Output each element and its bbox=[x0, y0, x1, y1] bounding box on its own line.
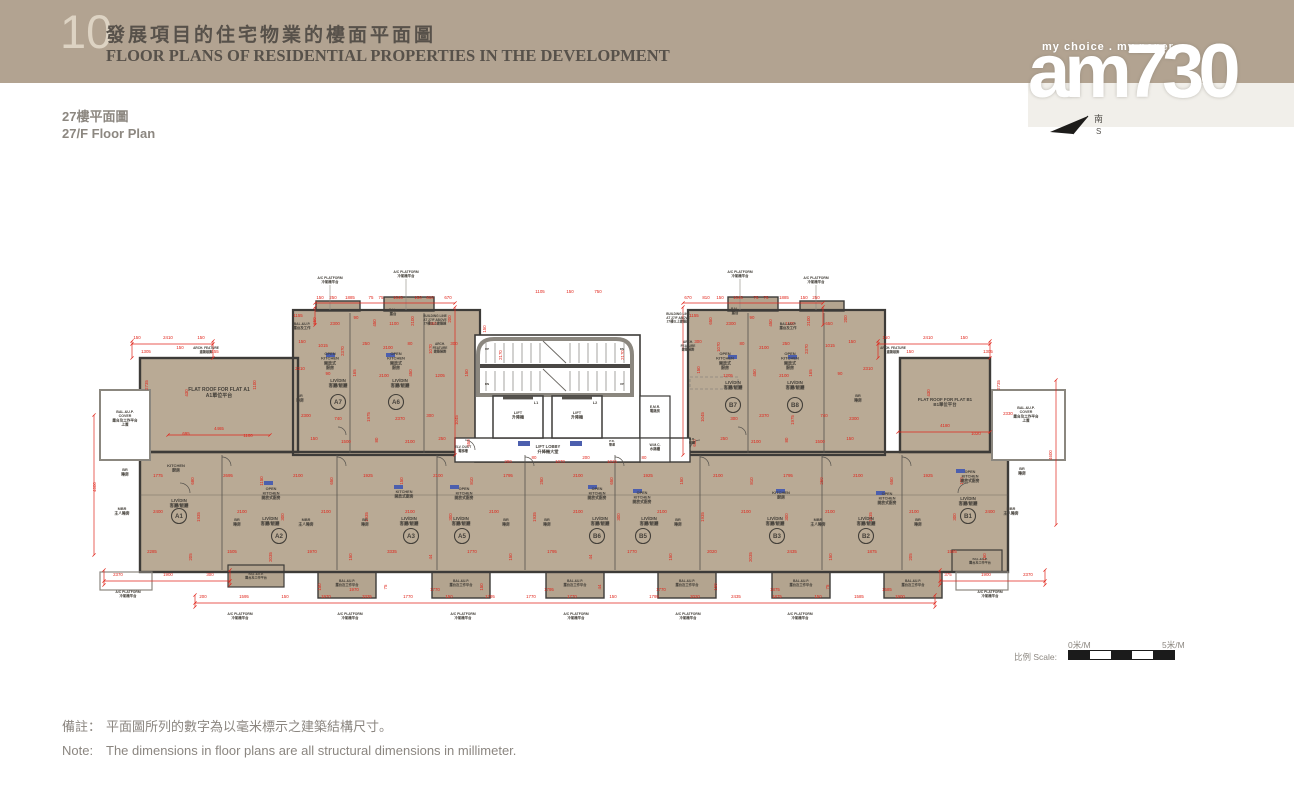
dimension-text: 2100 bbox=[237, 509, 247, 514]
unit-label: B6 bbox=[593, 533, 601, 540]
dimension-text: 450 bbox=[408, 369, 413, 377]
dimension-text: 2370 bbox=[1023, 572, 1033, 577]
dimension-text: 1015 bbox=[318, 343, 328, 348]
dimension-text: 165 bbox=[352, 369, 357, 377]
dimension-text: 44 bbox=[588, 554, 593, 559]
floor-label-en: 27/F Floor Plan bbox=[62, 125, 155, 142]
dimension-text: 810 bbox=[469, 477, 474, 485]
dimension-text: 1500 bbox=[341, 439, 351, 444]
dimension-text: 2100 bbox=[405, 439, 415, 444]
dimension-text: 2370 bbox=[759, 413, 769, 418]
dimension-text: 80 bbox=[740, 341, 745, 346]
dimension-text: 150 bbox=[696, 366, 701, 374]
dimension-text: 650 bbox=[609, 477, 614, 485]
compass-label-cn: 南 bbox=[1094, 113, 1103, 124]
dimension-text: 80 bbox=[642, 455, 647, 460]
room-label: UP bbox=[485, 347, 489, 351]
dimension-text: 1770 bbox=[467, 549, 477, 554]
dimension-text: 2400 bbox=[153, 509, 163, 514]
dimension-text: 810 bbox=[749, 477, 754, 485]
dimension-text: 3335 bbox=[362, 594, 372, 599]
dimension-text: 1305 bbox=[141, 349, 151, 354]
room-label: KITCHEN開放式廚房 bbox=[395, 490, 414, 498]
room-label: BUILDING LINEAT 27/F ABOVE27樓以上建築線 bbox=[666, 312, 690, 324]
unit-label: A6 bbox=[392, 399, 400, 406]
floor-plan-label: 27樓平面圖 27/F Floor Plan bbox=[62, 108, 155, 142]
dimension-text: 250 bbox=[782, 341, 790, 346]
dimension-text: 1505 bbox=[227, 549, 237, 554]
dimension-text: 1795 bbox=[547, 549, 557, 554]
dimension-text: 1875 bbox=[867, 549, 877, 554]
dimension-text: 1015 bbox=[825, 343, 835, 348]
dimension-text: 250 bbox=[438, 436, 446, 441]
dimension-text: 300 bbox=[426, 413, 434, 418]
dimension-text: 80 bbox=[408, 341, 413, 346]
dimension-text: 1970 bbox=[307, 549, 317, 554]
floor-plan: 1502501885757516451508106706708101501645… bbox=[88, 265, 1088, 645]
dimension-text: 450 bbox=[768, 319, 773, 327]
dimension-text: 1105 bbox=[535, 289, 545, 294]
dimension-text: 1775 bbox=[153, 473, 163, 478]
unit-label: B5 bbox=[639, 533, 647, 540]
room-label: LIV/DIN客廳/飯廳 bbox=[958, 496, 978, 507]
dimension-text: 1970 bbox=[349, 587, 359, 592]
note-label-cn: 備註： bbox=[62, 716, 106, 735]
room-label: L2 bbox=[593, 401, 597, 405]
room-label: LIV/DIN客廳/飯廳 bbox=[390, 378, 410, 389]
dimension-text: 90 bbox=[326, 371, 331, 376]
dimension-text: 1770 bbox=[430, 587, 440, 592]
room-label: H.R.喉轆 bbox=[689, 437, 695, 445]
dimension-text: 1205 bbox=[435, 373, 445, 378]
room-label: A/C PLATFORM冷氣機平台 bbox=[977, 590, 1003, 598]
compass-label-s: S bbox=[1096, 127, 1101, 136]
dimension-text: 1100 bbox=[389, 321, 399, 326]
dimension-text: 75 bbox=[379, 295, 384, 300]
dimension-text: 250 bbox=[539, 477, 544, 485]
dimension-text: 650 bbox=[889, 477, 894, 485]
dimension-text: 650 bbox=[708, 317, 713, 325]
dimension-text: 150 bbox=[316, 295, 324, 300]
scale-bar-segments bbox=[1068, 650, 1175, 660]
room-label: MBR主人睡房 bbox=[114, 507, 129, 515]
room-label: LIFT升降機 bbox=[512, 410, 524, 420]
dimension-text: 150 bbox=[348, 553, 353, 561]
dimension-text: 2100 bbox=[853, 473, 863, 478]
dimension-text: 1500 bbox=[815, 439, 825, 444]
dimension-text: 1645 bbox=[733, 295, 743, 300]
dimension-text: 150 bbox=[566, 289, 574, 294]
dimension-text: 2100 bbox=[909, 509, 919, 514]
room-label: A/C PLATFORM冷氣機平台 bbox=[787, 612, 813, 620]
room-label: BAL.&U.P.露台及工作 bbox=[780, 322, 798, 330]
dimension-text: 150 bbox=[310, 436, 318, 441]
room-label: UP bbox=[620, 382, 624, 386]
stair-landing bbox=[480, 364, 630, 368]
dimension-text: 250 bbox=[362, 341, 370, 346]
dimension-text: 2100 bbox=[751, 439, 761, 444]
dimension-text: 250 bbox=[812, 295, 820, 300]
room-label: LIV/DIN客廳/飯廳 bbox=[785, 380, 805, 391]
dimension-text: 150 bbox=[668, 553, 673, 561]
dimension-text: 200 bbox=[199, 594, 207, 599]
dimension-text: 2410 bbox=[923, 335, 933, 340]
dimension-text: 450 bbox=[752, 369, 757, 377]
dimension-text: 1770 bbox=[567, 594, 577, 599]
room-label: A/C PLATFORM冷氣機平台 bbox=[115, 590, 141, 598]
dimension-text: 1155 bbox=[293, 313, 303, 318]
dimension-text: 200 bbox=[504, 459, 512, 464]
dimension-text: 2035 bbox=[748, 552, 753, 562]
dimension-text: 1900 bbox=[981, 572, 991, 577]
dimension-text: 75 bbox=[825, 584, 830, 589]
room-label: DN bbox=[485, 382, 489, 386]
dimension-text: 1975 bbox=[790, 415, 795, 425]
dimension-text: 2735 bbox=[996, 380, 1001, 390]
dimension-text: 2300 bbox=[849, 416, 859, 421]
dimension-text: 650 bbox=[329, 477, 334, 485]
dimension-text: 150 bbox=[414, 295, 422, 300]
dimension-text: 150 bbox=[713, 583, 718, 591]
floor-label-cn: 27樓平面圖 bbox=[62, 108, 155, 125]
dimension-text: 3335 bbox=[387, 549, 397, 554]
dimension-text: 2020 bbox=[690, 594, 700, 599]
dimension-text: 150 bbox=[445, 594, 453, 599]
dimension-text: 150 bbox=[133, 335, 141, 340]
dimension-text: 1935 bbox=[700, 512, 705, 522]
dimension-text: 75 bbox=[369, 295, 374, 300]
room-label: A/C PLATFORM冷氣機平台 bbox=[227, 612, 253, 620]
unit-label: B3 bbox=[773, 533, 781, 540]
dimension-text: 1875 bbox=[772, 594, 782, 599]
room-label: LIV/DIN客廳/飯廳 bbox=[260, 516, 280, 527]
dimension-text: 150 bbox=[281, 594, 289, 599]
dimension-text: 150 bbox=[508, 553, 513, 561]
dimension-text: 300 bbox=[730, 416, 738, 421]
room-label: A/C PLATFORM冷氣機平台 bbox=[337, 612, 363, 620]
dimension-text: 2285 bbox=[147, 549, 157, 554]
dimension-text: 1770 bbox=[656, 587, 666, 592]
dimension-text: 2300 bbox=[330, 321, 340, 326]
room-label: LIV/DIN客廳/飯廳 bbox=[451, 516, 471, 527]
dim-chain-vertical bbox=[681, 305, 684, 456]
dimension-text: 1155 bbox=[689, 313, 699, 318]
dimension-text: 2300 bbox=[301, 413, 311, 418]
dimension-text: 300 bbox=[450, 341, 458, 346]
dimension-text: 1770 bbox=[403, 594, 413, 599]
unit-label: A1 bbox=[175, 513, 183, 520]
room-label: LIV/DIN客廳/飯廳 bbox=[765, 516, 785, 527]
room-label: A/C PLATFORM冷氣機平台 bbox=[393, 270, 419, 278]
unit-label: B1 bbox=[964, 513, 972, 520]
room-label: W.M.C.水錶櫃 bbox=[649, 443, 661, 451]
room-label: A/C PLATFORM冷氣機平台 bbox=[675, 612, 701, 620]
room-label: LIV/DIN客廳/飯廳 bbox=[723, 380, 743, 391]
room-label: A/C PLATFORM冷氣機平台 bbox=[317, 276, 343, 284]
dimension-text: 2100 bbox=[741, 509, 751, 514]
dimension-text: 1770 bbox=[526, 594, 536, 599]
room-label: DN bbox=[620, 347, 624, 351]
dimension-text: 2370 bbox=[804, 344, 809, 354]
dimension-text: 150 bbox=[906, 349, 914, 354]
dim-chain-vertical bbox=[102, 568, 105, 586]
dimension-text: 650 bbox=[825, 321, 833, 326]
dimension-text: 300 bbox=[616, 513, 621, 521]
dimension-text: 1045 bbox=[454, 415, 459, 425]
room-label: LIV/DIN客廳/飯廳 bbox=[399, 516, 419, 527]
dimension-text: 1875 bbox=[770, 587, 780, 592]
dimension-text: 2695 bbox=[223, 473, 233, 478]
room-label: BAL.露台 bbox=[389, 308, 397, 316]
dimension-text: 150 bbox=[464, 369, 469, 377]
dimension-text: 2100 bbox=[779, 373, 789, 378]
dimension-text: 150 bbox=[176, 345, 184, 350]
room-label: BAL.露台 bbox=[731, 307, 739, 315]
room-label: E.M.R.電錶房 bbox=[650, 405, 661, 413]
dimension-text: 1795 bbox=[485, 594, 495, 599]
dimension-text: 1925 bbox=[363, 473, 373, 478]
dimension-text: 150 bbox=[298, 339, 306, 344]
compass: 南 S bbox=[1048, 108, 1118, 144]
dimension-text: 1595 bbox=[239, 594, 249, 599]
dimension-text: 90 bbox=[354, 315, 359, 320]
emr-room bbox=[640, 396, 670, 438]
scale-label: 比例 Scale: bbox=[1014, 651, 1057, 663]
unit-label: A2 bbox=[275, 533, 283, 540]
room-label: BR睡房 bbox=[121, 468, 129, 476]
dimension-text: 2100 bbox=[293, 473, 303, 478]
dimension-text: 430 bbox=[926, 389, 931, 397]
dimension-text: 2100 bbox=[806, 316, 811, 326]
dimension-text: 75 bbox=[383, 584, 388, 589]
dimension-text: 2310 bbox=[295, 366, 305, 371]
dimension-text: 2310 bbox=[863, 366, 873, 371]
dimension-text: 2020 bbox=[707, 549, 717, 554]
dimension-text: 200 bbox=[447, 315, 452, 323]
dimension-text: 1045 bbox=[700, 412, 705, 422]
dimension-text: 1885 bbox=[779, 295, 789, 300]
dimension-text: 150 bbox=[960, 335, 968, 340]
dimension-text: 300 bbox=[952, 513, 957, 521]
dimension-text: 44 bbox=[597, 584, 602, 589]
dimension-text: 150 bbox=[846, 436, 854, 441]
dimension-text: 450 bbox=[372, 319, 377, 327]
dimension-text: 2100 bbox=[410, 316, 415, 326]
north-arrow-icon bbox=[1050, 116, 1088, 134]
dimension-text: 250 bbox=[329, 295, 337, 300]
room-label: LIV/DIN客廳/飯廳 bbox=[856, 516, 876, 527]
dimension-text: 1205 bbox=[723, 373, 733, 378]
dimension-text: 810 bbox=[426, 295, 434, 300]
dimension-text: 1935 bbox=[532, 512, 537, 522]
note-text-en: The dimensions in floor plans are all st… bbox=[106, 743, 516, 758]
room-label: LIV/DIN客廳/飯廳 bbox=[639, 516, 659, 527]
dimension-text: 1020 bbox=[971, 431, 981, 436]
dimension-text: 2035 bbox=[268, 552, 273, 562]
unit-label: A7 bbox=[334, 399, 342, 406]
dimension-text: 2100 bbox=[489, 509, 499, 514]
dimension-text: 2100 bbox=[405, 509, 415, 514]
room-label: LIV/DIN客廳/飯廳 bbox=[590, 516, 610, 527]
dimension-text: 75 bbox=[754, 295, 759, 300]
dimension-text: 300 bbox=[784, 513, 789, 521]
dimension-text: 680 bbox=[190, 477, 195, 485]
dimension-text: 2300 bbox=[726, 321, 736, 326]
dimension-text: 150 bbox=[679, 477, 684, 485]
dimension-text: 1795 bbox=[503, 473, 513, 478]
dimension-text: 4180 bbox=[940, 423, 950, 428]
dimension-text: 740 bbox=[334, 416, 342, 421]
unit-label: A3 bbox=[407, 533, 415, 540]
dimension-text: 4600 bbox=[92, 482, 97, 492]
room-label: P.D.管道 bbox=[609, 439, 615, 447]
room-label: A/C PLATFORM冷氣機平台 bbox=[727, 270, 753, 278]
scale-bar: 比例 Scale: 0米/M 5米/M bbox=[1014, 638, 1194, 664]
dimension-text: 695 bbox=[182, 431, 190, 436]
dimension-text: 1885 bbox=[345, 295, 355, 300]
dimension-text: 4600 bbox=[1048, 450, 1053, 460]
dimension-text: 2100 bbox=[321, 509, 331, 514]
dimension-text: 2100 bbox=[573, 473, 583, 478]
dim-chain bbox=[193, 601, 936, 604]
room-label: BR睡房 bbox=[1018, 467, 1026, 475]
dimension-text: 1900 bbox=[895, 594, 905, 599]
dimension-text: 200 bbox=[843, 315, 848, 323]
note-label-en: Note: bbox=[62, 743, 106, 758]
room-label: L1 bbox=[534, 401, 538, 405]
dimension-text: 2170 bbox=[620, 350, 625, 360]
room-label: BAL.&U.P.露台及工作 bbox=[294, 322, 312, 330]
dimension-text: 1770 bbox=[627, 549, 637, 554]
dimension-text: 75 bbox=[764, 295, 769, 300]
dimension-text: 2330 bbox=[1003, 411, 1013, 416]
dimension-text: 4465 bbox=[214, 426, 224, 431]
dimension-text: 2100 bbox=[657, 509, 667, 514]
unit-label: B7 bbox=[729, 402, 737, 409]
section-number: 10 bbox=[60, 4, 112, 59]
dimension-text: 2100 bbox=[759, 345, 769, 350]
room-label: MBR主人睡房 bbox=[1003, 507, 1018, 515]
dimension-text: 150 bbox=[882, 335, 890, 340]
dimension-text: 1795 bbox=[783, 473, 793, 478]
dimension-text: 1900 bbox=[163, 572, 173, 577]
dimension-text: 150 bbox=[482, 325, 487, 333]
dimension-text: 250 bbox=[819, 477, 824, 485]
dimension-text: 1925 bbox=[643, 473, 653, 478]
dimension-text: 1585 bbox=[854, 594, 864, 599]
dimension-text: 250 bbox=[720, 436, 728, 441]
room-label: BUILDING LINEAT 27/F ABOVE27樓以上建築線 bbox=[423, 314, 447, 326]
dimension-text: 1925 bbox=[923, 473, 933, 478]
notes: 備註： 平面圖所列的數字為以毫米標示之建築結構尺寸。 Note: The dim… bbox=[62, 716, 516, 766]
dimension-text: 2370 bbox=[340, 346, 345, 356]
note-text-cn: 平面圖所列的數字為以毫米標示之建築結構尺寸。 bbox=[106, 716, 392, 735]
dimension-text: 150 bbox=[716, 295, 724, 300]
dim-chain bbox=[938, 579, 1046, 582]
dimension-text: 80 bbox=[784, 437, 789, 442]
dimension-text: 1100 bbox=[252, 380, 257, 390]
page-title-english: FLOOR PLANS OF RESIDENTIAL PROPERTIES IN… bbox=[106, 46, 670, 66]
dimension-text: 2435 bbox=[787, 549, 797, 554]
dimension-text: 2100 bbox=[433, 473, 443, 478]
dimension-text: 740 bbox=[820, 413, 828, 418]
dimension-text: 1585 bbox=[882, 587, 892, 592]
dimension-text: 2370 bbox=[395, 416, 405, 421]
dimension-text: 1795 bbox=[649, 594, 659, 599]
dimension-text: 2100 bbox=[825, 509, 835, 514]
dimension-text: 2170 bbox=[498, 350, 503, 360]
dimension-text: 650 bbox=[312, 317, 317, 325]
dimension-text: 300 bbox=[694, 339, 702, 344]
dimension-text: 2100 bbox=[713, 473, 723, 478]
dimension-text: 90 bbox=[838, 371, 843, 376]
dimension-text: 150 bbox=[399, 477, 404, 485]
dimension-text: 150 bbox=[197, 335, 205, 340]
dimension-text: 205 bbox=[188, 553, 193, 561]
dimension-text: 1015 bbox=[607, 459, 617, 464]
unit-label: A5 bbox=[458, 533, 466, 540]
room-label: LIV/DIN客廳/飯廳 bbox=[169, 498, 189, 509]
unit-label: B2 bbox=[862, 533, 870, 540]
dim-chain-vertical bbox=[193, 593, 196, 608]
room-label: A/C PLATFORM冷氣機平台 bbox=[563, 612, 589, 620]
dimension-text: 810 bbox=[702, 295, 710, 300]
unit-label: B8 bbox=[791, 402, 799, 409]
dimension-text: 300 bbox=[280, 513, 285, 521]
dimension-text: 205 bbox=[908, 553, 913, 561]
page-title-chinese: 發展項目的住宅物業的樓面平面圖 bbox=[106, 20, 436, 47]
dimension-text: 1100 bbox=[243, 433, 253, 438]
dimension-text: 80 bbox=[532, 455, 537, 460]
room-label: A/C PLATFORM冷氣機平台 bbox=[450, 612, 476, 620]
dimension-text: 44 bbox=[428, 554, 433, 559]
dimension-text: 165 bbox=[808, 369, 813, 377]
dimension-text: 150 bbox=[479, 583, 484, 591]
dimension-text: 2100 bbox=[383, 345, 393, 350]
dimension-text: 1070 bbox=[555, 459, 565, 464]
dim-chain bbox=[102, 579, 231, 582]
dimension-text: 2370 bbox=[113, 572, 123, 577]
dimension-text: 150 bbox=[800, 295, 808, 300]
room-label: LIFT LOBBY升降機大堂 bbox=[536, 444, 561, 455]
dimension-text: 150 bbox=[828, 553, 833, 561]
dimension-text: 1305 bbox=[983, 349, 993, 354]
dimension-text: 1150 bbox=[259, 476, 264, 486]
dimension-text: 1585 bbox=[947, 549, 957, 554]
dimension-text: 1975 bbox=[366, 412, 371, 422]
dimension-text: 90 bbox=[750, 315, 755, 320]
room-label: A/C PLATFORM冷氣機平台 bbox=[803, 276, 829, 284]
dimension-text: 2435 bbox=[731, 594, 741, 599]
dimension-text: 2735 bbox=[144, 380, 149, 390]
dimension-text: 2100 bbox=[379, 373, 389, 378]
room-label: LIV/DIN客廳/飯廳 bbox=[328, 378, 348, 389]
dimension-text: 300 bbox=[206, 572, 214, 577]
dimension-text: 1935 bbox=[196, 512, 201, 522]
dimension-text: 2100 bbox=[573, 509, 583, 514]
dimension-text: 750 bbox=[594, 289, 602, 294]
dimension-text: 1795 bbox=[544, 587, 554, 592]
dimension-text: 670 bbox=[684, 295, 692, 300]
dimension-text: 150 bbox=[317, 583, 322, 591]
dimension-text: 375 bbox=[944, 572, 952, 577]
dim-chain-vertical bbox=[1043, 568, 1046, 586]
dimension-text: 2400 bbox=[985, 509, 995, 514]
room-label: LIFT升降機 bbox=[571, 410, 583, 420]
dimension-text: 670 bbox=[444, 295, 452, 300]
dimension-text: 150 bbox=[848, 339, 856, 344]
am730-logo: am730 bbox=[1028, 34, 1258, 110]
